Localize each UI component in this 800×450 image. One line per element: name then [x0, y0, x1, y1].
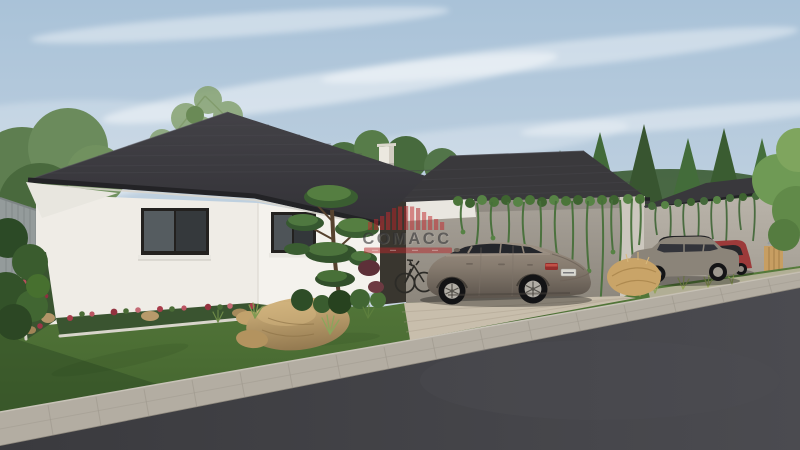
comacc-wordmark: COMACC [362, 230, 451, 248]
window-1 [138, 208, 211, 260]
render-scene: COMACC COMACC [0, 0, 800, 450]
front-wheel [439, 278, 466, 305]
side-mirror [454, 248, 460, 252]
rear-wheel [519, 275, 548, 304]
